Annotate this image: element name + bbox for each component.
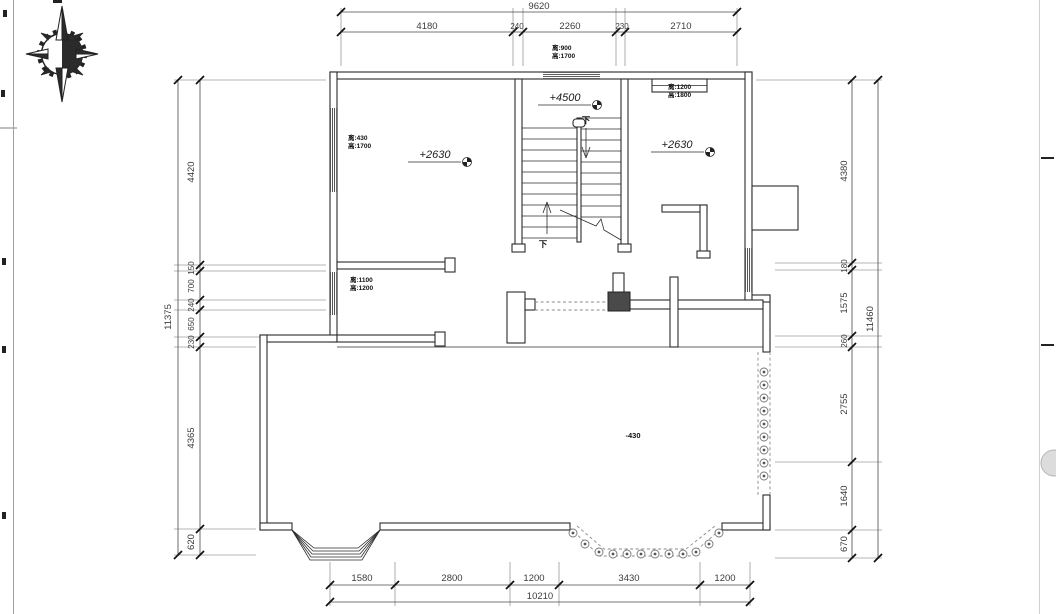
- window-spec-label-left-room: 离:430 高:1700: [348, 133, 372, 150]
- stair-arrow-up: 下: [539, 202, 551, 249]
- bay-balustrade: [569, 526, 723, 558]
- dim-top-total: 9620: [528, 1, 549, 12]
- dim-bottom-seg: 3430: [618, 573, 639, 584]
- dim-top-seg: 4180: [416, 21, 437, 32]
- dim-right-seg: 260: [840, 334, 849, 348]
- elevation-marker-stair-hall: +4500: [538, 92, 602, 110]
- elevation-value: +2630: [420, 149, 452, 161]
- window-spec-label-right-room: 离:1200 高:1800: [668, 82, 692, 99]
- entry-steps: [292, 530, 380, 560]
- stair-arrow-down: 下: [582, 115, 591, 158]
- stair-direction-label: 下: [539, 239, 548, 249]
- stair-treads: [522, 118, 621, 238]
- window-spec-label-left-corridor: 离:1100 高:1200: [350, 275, 374, 292]
- window-spec-line2: 高:1700: [348, 141, 372, 150]
- dim-left-seg: 620: [186, 534, 197, 550]
- dim-top-seg: 240: [510, 22, 524, 31]
- window-spec-label-top-wall: 离:900 高:1700: [552, 43, 576, 60]
- window-spec-line2: 高:1200: [350, 283, 374, 292]
- dim-bottom-total: 10210: [527, 591, 553, 602]
- dim-top-seg: 2710: [670, 21, 691, 32]
- dim-bottom-seg: 1200: [714, 573, 735, 584]
- floor-plan-walls: [260, 72, 798, 530]
- window-spec-line2: 高:1700: [552, 51, 576, 60]
- window-left-corridor: [330, 272, 337, 315]
- dim-bottom-seg: 1580: [351, 573, 372, 584]
- dim-right-seg: 4380: [839, 160, 850, 181]
- dim-right-seg: 1640: [839, 485, 850, 506]
- structural-column: [608, 292, 630, 311]
- dimension-chain-right: 11460 4380 180 1575 260 2755 1640 670: [839, 76, 882, 562]
- staircase: 下 下: [522, 115, 621, 249]
- dim-right-seg: 1575: [839, 292, 850, 313]
- window-spec-line1: 离:430: [348, 133, 368, 142]
- window-spec-line2: 高:1800: [668, 90, 692, 99]
- dim-top-seg: 2260: [559, 21, 580, 32]
- dim-right-seg: 180: [840, 259, 849, 273]
- elevation-marker-terrace: -430: [625, 431, 640, 440]
- dim-left-seg: 700: [187, 279, 196, 293]
- dim-left-seg: 4420: [186, 161, 197, 182]
- window-spec-line1: 离:900: [552, 43, 572, 52]
- dim-left-seg: 230: [187, 335, 196, 349]
- stair-direction-label: 下: [582, 115, 591, 125]
- dimension-chain-top: 9620 4180 240 2260 230 2710: [337, 1, 741, 36]
- window-left-room: [330, 108, 337, 192]
- elevation-value: +4500: [550, 92, 582, 104]
- dimension-chain-left: 11375 4420 150 700 240 650 230 4365 620: [163, 76, 204, 559]
- dim-right-total: 11460: [865, 306, 876, 332]
- window-spec-line1: 离:1200: [668, 82, 692, 91]
- stair-divider: [577, 118, 581, 242]
- window-spec-line1: 离:1100: [350, 275, 373, 284]
- dim-left-total: 11375: [163, 304, 174, 330]
- stair-break-line: [560, 210, 621, 240]
- window-top-wall: [543, 72, 600, 79]
- floor-plan-canvas: 9620 4180 240 2260 230 2710 11375 4420 1…: [0, 0, 1056, 614]
- door-opening-dashed: [535, 302, 606, 310]
- dimension-chain-bottom: 1580 2800 1200 3430 1200 10210: [326, 573, 754, 606]
- dim-right-seg: 2755: [839, 393, 850, 414]
- dim-bottom-seg: 1200: [523, 573, 544, 584]
- dim-top-seg: 230: [615, 22, 629, 31]
- elevation-marker-right-room: +2630: [651, 139, 715, 157]
- dim-right-seg: 670: [839, 536, 850, 552]
- elevation-value: +2630: [662, 139, 694, 151]
- dim-left-seg: 4365: [186, 427, 197, 448]
- viewer-edge-right: [1040, 0, 1056, 614]
- elevation-marker-left-room: +2630: [408, 149, 472, 167]
- windows: [330, 72, 752, 315]
- compass-rose-icon: [26, 6, 98, 102]
- dim-left-seg: 650: [187, 317, 196, 331]
- terrace-railing: [758, 352, 770, 495]
- dim-bottom-seg: 2800: [441, 573, 462, 584]
- dim-left-seg: 240: [187, 298, 196, 312]
- dim-left-seg: 150: [187, 261, 196, 275]
- edge-ruler-left: [0, 0, 62, 614]
- window-right-room: [745, 248, 752, 292]
